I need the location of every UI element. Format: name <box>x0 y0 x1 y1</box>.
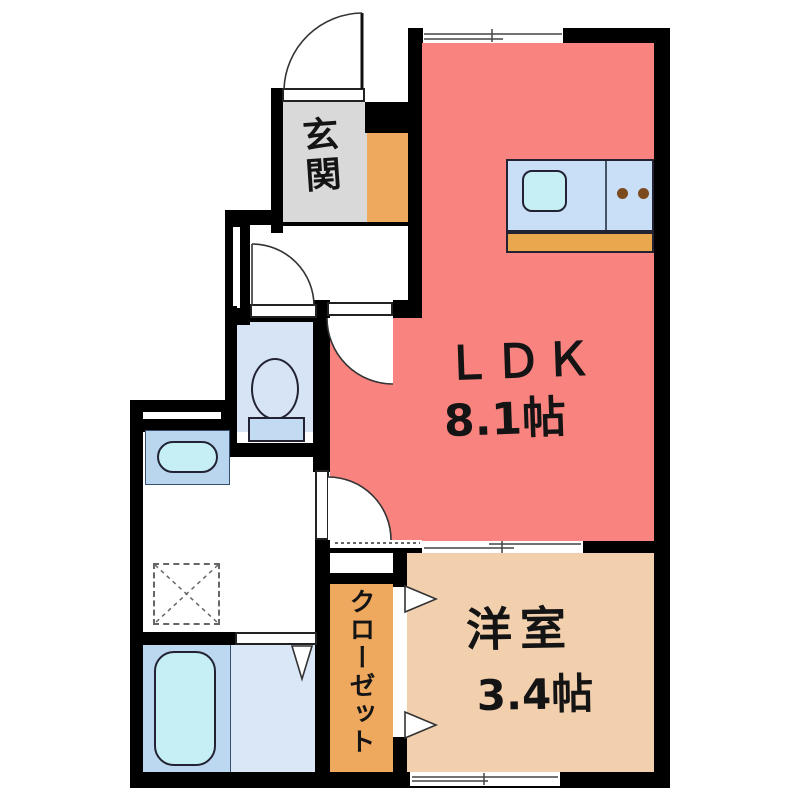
stove-burner-right <box>638 188 649 199</box>
room-shower-zone <box>230 645 315 772</box>
bathtub-fixture <box>154 651 216 766</box>
kitchen-counter-divider <box>605 161 607 230</box>
toilet-door-threshold <box>250 304 317 318</box>
room-ldk-lower <box>330 318 422 540</box>
toilet-bowl <box>251 358 299 420</box>
closet-door-track <box>394 587 407 737</box>
label-closet: クローゼット <box>347 588 373 770</box>
wall-hall-ldk-side <box>393 300 422 318</box>
label-ldk-size: 8.1帖 <box>414 395 595 445</box>
stove-burner-left <box>617 188 628 199</box>
western-room-window <box>410 772 560 786</box>
wall-left-outer <box>130 400 143 788</box>
label-ldk: ＬＤＫ <box>429 335 610 387</box>
genkan-step-line <box>283 222 408 226</box>
room-western <box>407 553 654 772</box>
wall-toilet-bottom <box>225 443 330 457</box>
washroom-door-threshold <box>315 470 329 540</box>
room-ldk <box>422 43 654 541</box>
ldk-door-threshold <box>327 302 393 316</box>
toilet-tank <box>248 417 305 442</box>
wall-wash-window-bar1 <box>130 400 225 412</box>
wall-closet-right-lower <box>393 737 407 772</box>
wall-closet-right-upper <box>393 553 407 587</box>
floor-plan: 玄関 ＬＤＫ 8.1帖 洋室 3.4帖 クローゼット <box>0 0 800 800</box>
wall-closet-left <box>320 542 330 788</box>
wall-ldk-left <box>408 28 422 318</box>
wall-bottom <box>130 772 670 788</box>
label-genkan: 玄関 <box>297 115 338 197</box>
shoe-cabinet <box>367 133 408 222</box>
wall-closet-top <box>320 573 397 584</box>
wall-right <box>654 28 670 788</box>
entrance-threshold <box>282 88 365 102</box>
hall-window-slit <box>233 227 240 308</box>
wall-band-left-bar <box>330 548 422 553</box>
wall-band-right-cap <box>583 541 654 553</box>
entrance-door-arc <box>284 13 362 89</box>
closet-top-recess <box>330 553 393 573</box>
toilet-door-arc <box>252 244 314 306</box>
wall-bath-divider <box>143 632 237 645</box>
washing-machine-area <box>153 563 220 625</box>
label-western-room-size: 3.4帖 <box>450 673 621 718</box>
vanity-sink <box>157 441 218 473</box>
kitchen-base <box>506 232 654 253</box>
ldk-western-sliding-door <box>422 541 583 553</box>
ldk-window <box>423 27 563 43</box>
wall-genkan-notch <box>365 102 408 133</box>
bath-door-threshold <box>235 632 317 645</box>
label-western-room: 洋室 <box>440 605 601 654</box>
kitchen-sink <box>522 170 567 212</box>
